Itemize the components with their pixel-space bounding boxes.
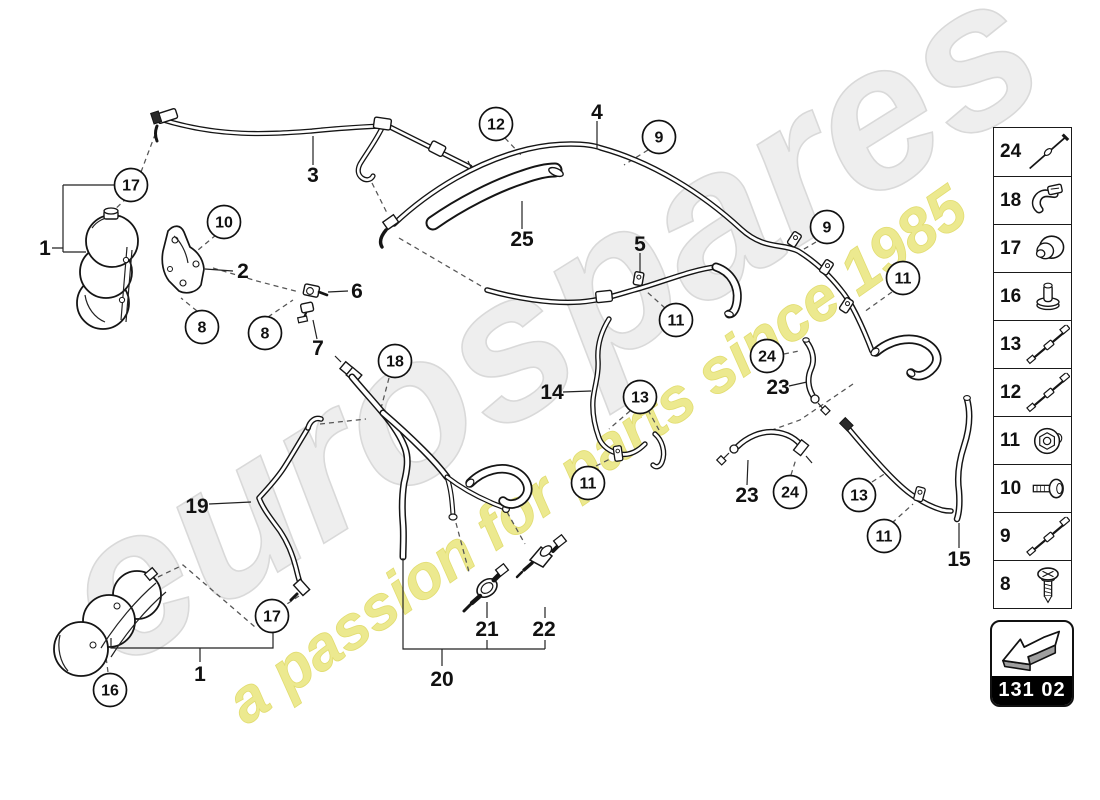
legend-item-16[interactable]: 16 bbox=[994, 272, 1071, 320]
part-label-7[interactable]: 7 bbox=[312, 337, 324, 360]
callout-18[interactable]: 18 bbox=[379, 345, 412, 378]
svg-text:11: 11 bbox=[668, 313, 685, 330]
legend-item-8[interactable]: 8 bbox=[994, 560, 1071, 608]
callout-12[interactable]: 12 bbox=[480, 108, 513, 141]
part-code-box[interactable]: 131 02 bbox=[990, 620, 1074, 707]
part-label-1[interactable]: 1 bbox=[194, 663, 206, 686]
callout-13[interactable]: 13 bbox=[624, 381, 657, 414]
callout-8[interactable]: 8 bbox=[186, 311, 219, 344]
callout-9[interactable]: 9 bbox=[811, 211, 844, 244]
legend-item-24[interactable]: 24 bbox=[994, 128, 1071, 176]
svg-text:13: 13 bbox=[631, 390, 649, 407]
callout-11[interactable]: 11 bbox=[868, 520, 901, 553]
legend-item-10[interactable]: 10 bbox=[994, 464, 1071, 512]
parts-legend: 241817161312111098 bbox=[993, 127, 1072, 609]
callout-11[interactable]: 11 bbox=[660, 304, 693, 337]
parts-diagram-page: eurospares a passion for parts since 198… bbox=[0, 0, 1100, 800]
diagram-group-arrow-icon bbox=[992, 622, 1072, 676]
cable-icon bbox=[1026, 516, 1070, 558]
part-label-1[interactable]: 1 bbox=[39, 237, 51, 260]
part-label-23[interactable]: 23 bbox=[735, 484, 758, 507]
part-label-15[interactable]: 15 bbox=[947, 548, 971, 571]
svg-text:13: 13 bbox=[850, 488, 868, 505]
plug-icon bbox=[1026, 276, 1070, 318]
legend-item-number: 10 bbox=[994, 478, 1026, 500]
callout-24[interactable]: 24 bbox=[751, 340, 784, 373]
callout-13[interactable]: 13 bbox=[843, 479, 876, 512]
legend-item-9[interactable]: 9 bbox=[994, 512, 1071, 560]
part-label-25[interactable]: 25 bbox=[510, 228, 534, 251]
svg-text:8: 8 bbox=[198, 320, 207, 337]
part-label-22[interactable]: 22 bbox=[532, 618, 555, 641]
bolt-icon bbox=[1026, 468, 1070, 510]
legend-item-13[interactable]: 13 bbox=[994, 320, 1071, 368]
cable-icon bbox=[1026, 372, 1070, 414]
callout-8[interactable]: 8 bbox=[249, 317, 282, 350]
part-label-5[interactable]: 5 bbox=[634, 233, 646, 256]
legend-item-number: 18 bbox=[994, 190, 1026, 212]
legend-item-number: 24 bbox=[994, 141, 1026, 163]
legend-item-17[interactable]: 17 bbox=[994, 224, 1071, 272]
grommet-icon bbox=[1026, 228, 1070, 270]
legend-item-number: 16 bbox=[994, 286, 1026, 308]
nut-icon bbox=[1026, 420, 1070, 462]
part-code: 131 02 bbox=[992, 676, 1072, 705]
legend-item-18[interactable]: 18 bbox=[994, 176, 1071, 224]
part-label-20[interactable]: 20 bbox=[430, 668, 453, 691]
svg-text:11: 11 bbox=[876, 529, 893, 546]
svg-text:24: 24 bbox=[781, 485, 799, 502]
svg-text:11: 11 bbox=[580, 476, 597, 493]
svg-text:9: 9 bbox=[655, 130, 664, 147]
diagram-canvas: eurospares a passion for parts since 198… bbox=[0, 0, 1100, 800]
part-label-23[interactable]: 23 bbox=[766, 376, 789, 399]
legend-item-number: 17 bbox=[994, 238, 1026, 260]
svg-text:10: 10 bbox=[215, 215, 233, 232]
svg-text:16: 16 bbox=[101, 683, 119, 700]
callout-10[interactable]: 10 bbox=[208, 206, 241, 239]
part-label-4[interactable]: 4 bbox=[591, 101, 603, 124]
svg-text:24: 24 bbox=[758, 349, 776, 366]
legend-item-number: 12 bbox=[994, 382, 1026, 404]
legend-item-11[interactable]: 11 bbox=[994, 416, 1071, 464]
cable-icon bbox=[1026, 324, 1070, 366]
legend-item-12[interactable]: 12 bbox=[994, 368, 1071, 416]
part-label-3[interactable]: 3 bbox=[307, 164, 319, 187]
part-label-14[interactable]: 14 bbox=[540, 381, 564, 404]
svg-text:17: 17 bbox=[122, 178, 140, 195]
callout-11[interactable]: 11 bbox=[887, 262, 920, 295]
svg-text:9: 9 bbox=[823, 220, 832, 237]
callout-11[interactable]: 11 bbox=[572, 467, 605, 500]
part-label-21[interactable]: 21 bbox=[475, 618, 499, 641]
legend-item-number: 8 bbox=[994, 574, 1026, 596]
watermark-brand: eurospares bbox=[20, 0, 1079, 709]
callout-24[interactable]: 24 bbox=[774, 476, 807, 509]
part-label-2[interactable]: 2 bbox=[237, 260, 249, 283]
svg-text:18: 18 bbox=[386, 354, 404, 371]
clip-icon bbox=[1026, 180, 1070, 222]
legend-item-number: 11 bbox=[994, 430, 1026, 452]
svg-text:12: 12 bbox=[487, 117, 505, 134]
callout-17[interactable]: 17 bbox=[256, 600, 289, 633]
pin-icon bbox=[1026, 131, 1070, 173]
callout-16[interactable]: 16 bbox=[94, 674, 127, 707]
svg-text:17: 17 bbox=[263, 609, 281, 626]
legend-item-number: 13 bbox=[994, 334, 1026, 356]
part-label-19[interactable]: 19 bbox=[185, 495, 208, 518]
callout-17[interactable]: 17 bbox=[115, 169, 148, 202]
legend-item-number: 9 bbox=[994, 526, 1026, 548]
svg-text:11: 11 bbox=[895, 271, 912, 288]
part-label-6[interactable]: 6 bbox=[351, 280, 363, 303]
screw-icon bbox=[1026, 564, 1070, 606]
callout-9[interactable]: 9 bbox=[643, 121, 676, 154]
svg-text:8: 8 bbox=[261, 326, 270, 343]
